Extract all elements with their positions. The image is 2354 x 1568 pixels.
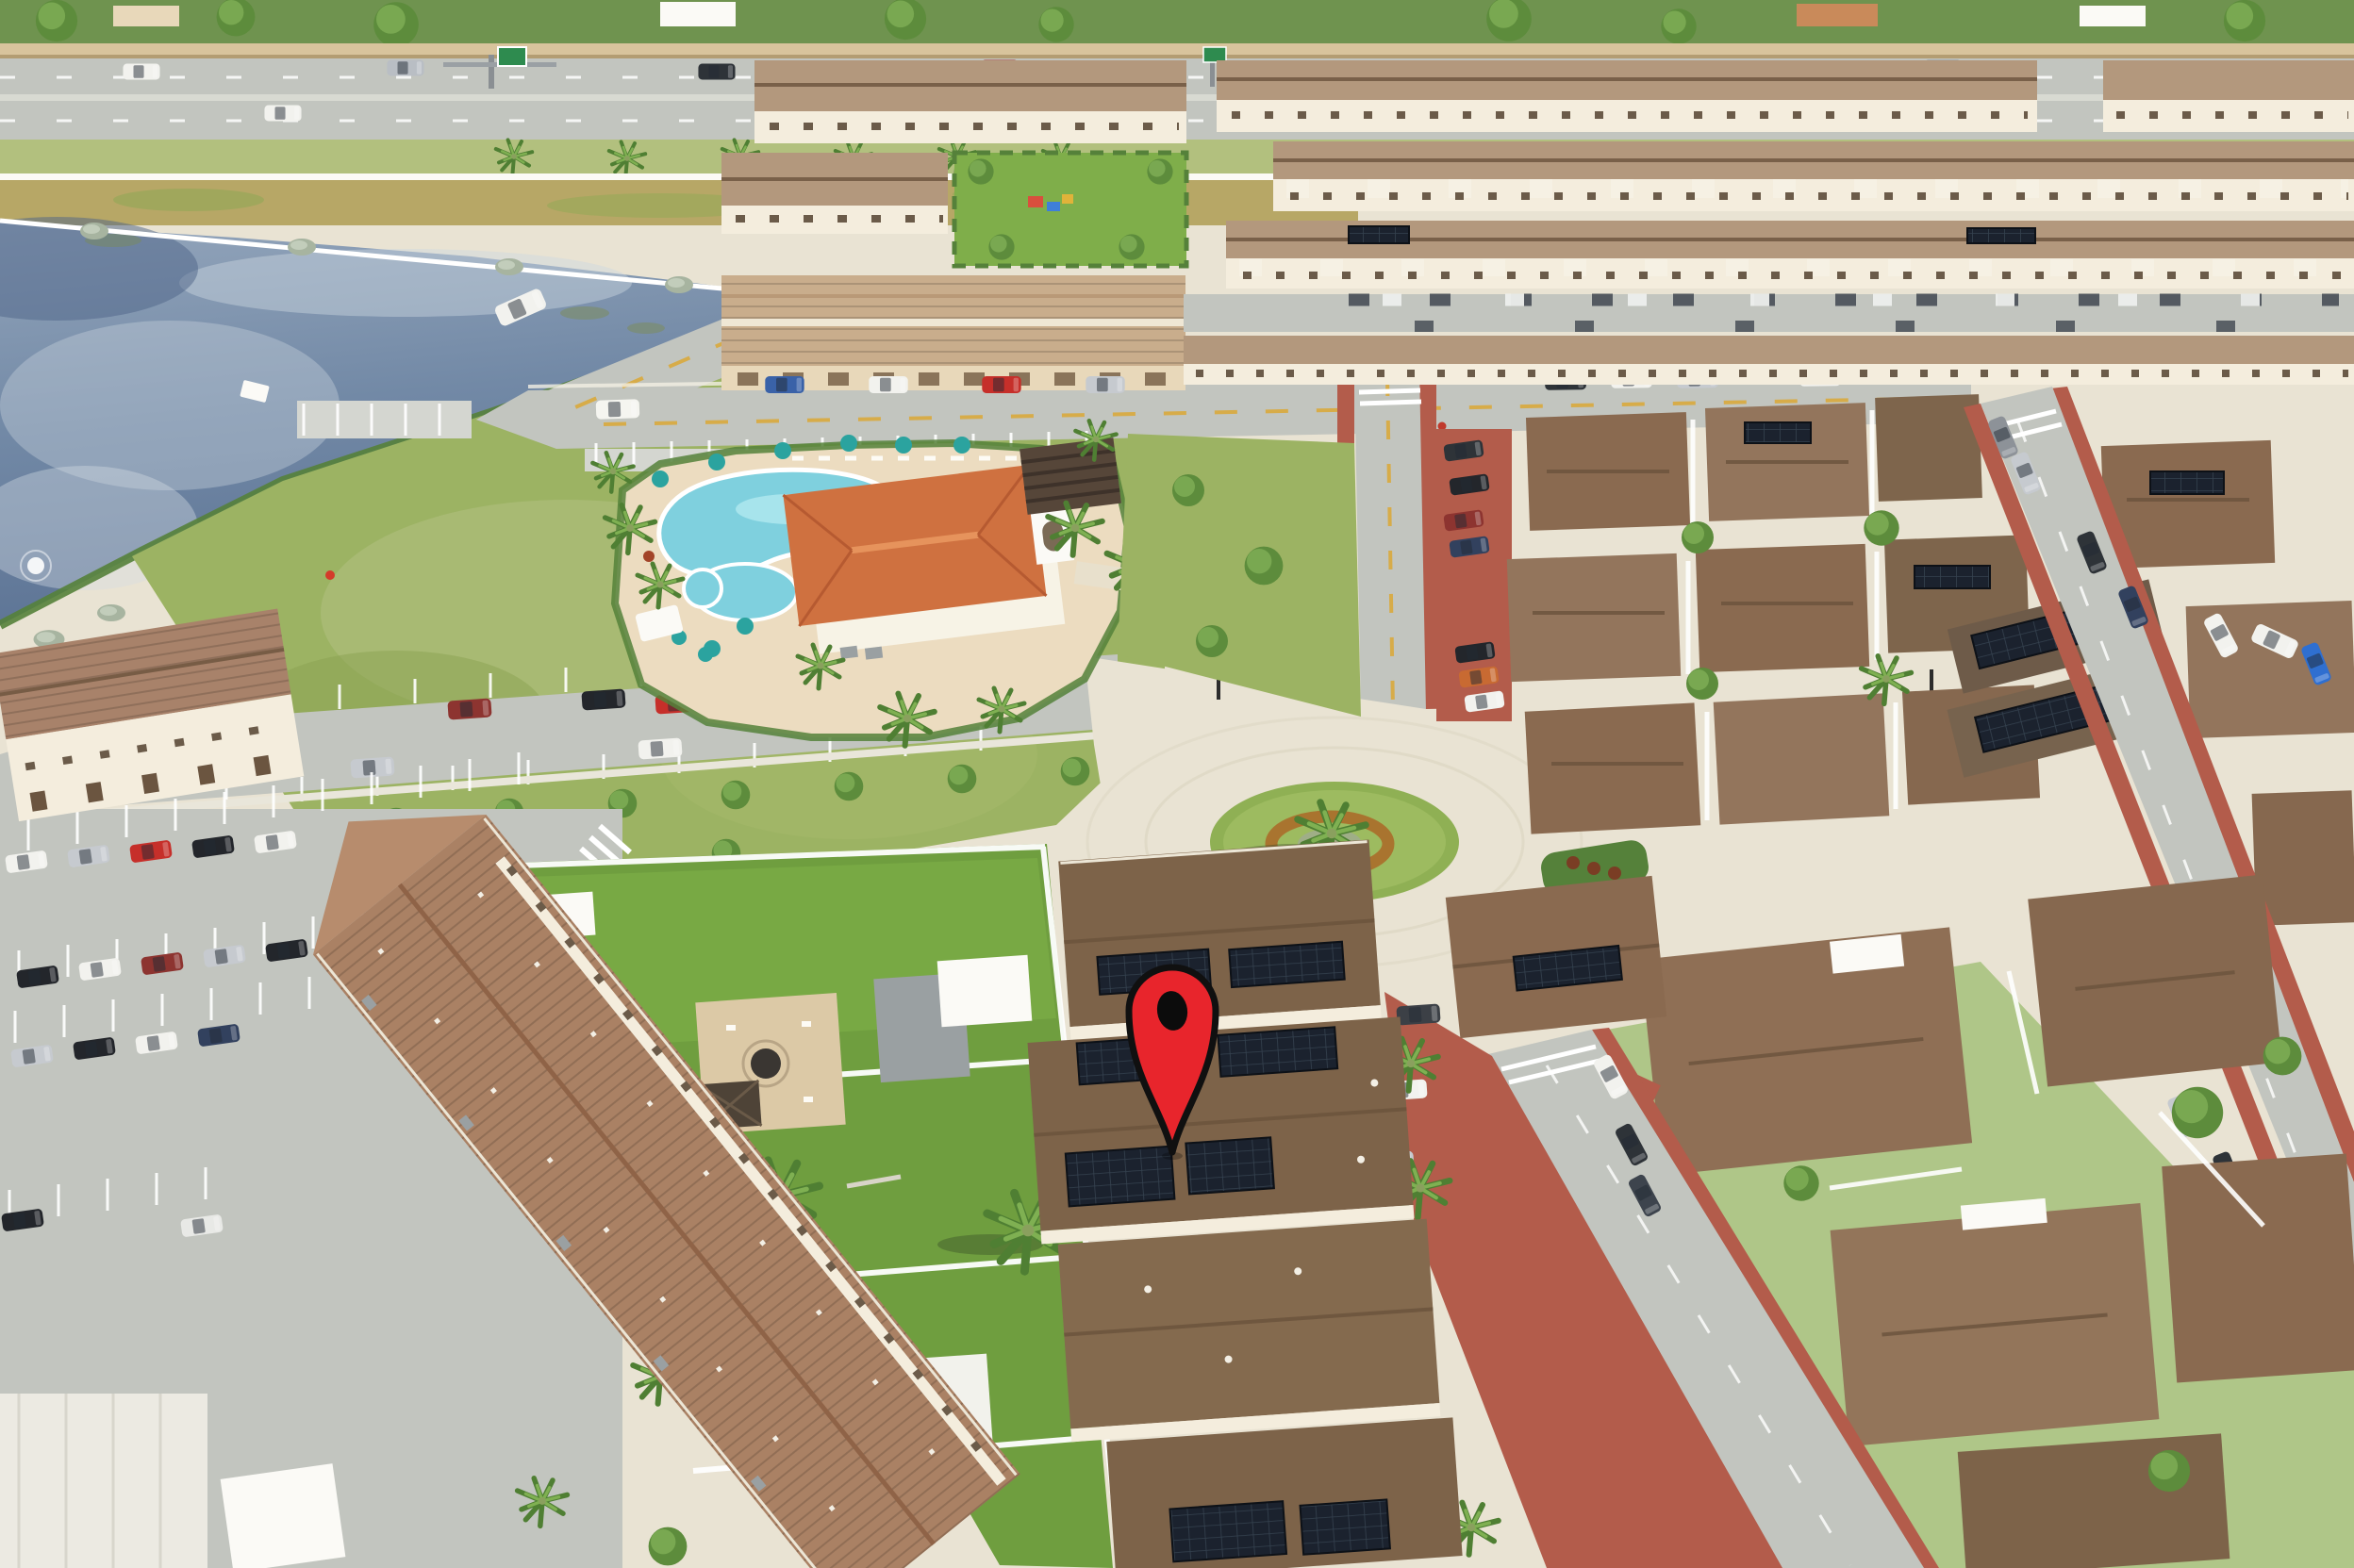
solar-panels [1169, 1501, 1286, 1561]
solar-panels [1229, 942, 1344, 987]
tree [948, 765, 977, 794]
tree [2148, 1450, 2190, 1492]
car [1086, 376, 1124, 393]
tree [1172, 474, 1204, 506]
solar-panels [1349, 226, 1409, 243]
tree [988, 234, 1014, 259]
tree [1147, 158, 1172, 184]
house-block [2162, 1153, 2354, 1382]
tree [1245, 547, 1284, 586]
car [387, 60, 423, 76]
house-block [1958, 1433, 2230, 1568]
tree [721, 781, 751, 810]
tree [2263, 1037, 2302, 1076]
solar-panels [1967, 228, 2035, 243]
aerial-photo [0, 0, 2354, 1568]
car [264, 106, 301, 122]
flat-roof-building [0, 1394, 207, 1568]
tree [373, 2, 419, 47]
tree [649, 1527, 688, 1566]
white-van [596, 399, 640, 420]
solar-panels [1915, 566, 1990, 588]
car [123, 64, 159, 80]
car [638, 737, 682, 759]
car [982, 376, 1020, 393]
tree [2172, 1087, 2223, 1138]
solar-panels [1066, 1147, 1175, 1207]
shrub [80, 223, 108, 239]
house-with-solar [1446, 876, 1666, 1038]
lake-fountain [27, 557, 44, 574]
solar-panels [1218, 1027, 1337, 1077]
shrub [495, 258, 523, 275]
highway-sign [1203, 47, 1226, 62]
flat-roof-building [221, 1463, 346, 1568]
shrub [97, 604, 125, 621]
solar-panels [2150, 471, 2224, 494]
car [581, 688, 625, 710]
townhouse-rows-northeast [1184, 60, 2354, 385]
pergola [1020, 437, 1121, 515]
solar-panels [1185, 1137, 1274, 1194]
tree [1661, 8, 1696, 43]
shrub [288, 239, 316, 256]
fire-pit [751, 1048, 781, 1079]
spa [684, 569, 721, 607]
house-block [1640, 927, 1972, 1175]
suv [1396, 1003, 1440, 1025]
house-with-solar [1058, 839, 1381, 1040]
car [869, 376, 907, 393]
tree [1119, 234, 1144, 259]
house-block [1058, 1219, 1441, 1443]
highway-sign [498, 47, 526, 66]
aerial-photo-canvas [0, 0, 2354, 1568]
tree [2224, 0, 2265, 41]
house-with-solar [1028, 1016, 1415, 1244]
sign-gantry [489, 55, 494, 89]
tree [36, 0, 77, 41]
tree [1686, 668, 1718, 700]
car [698, 64, 735, 80]
highway-sound-wall [0, 43, 2354, 57]
house-block [1829, 1190, 2159, 1446]
tree [1864, 510, 1898, 545]
tree [1061, 757, 1090, 786]
person-in-red [325, 570, 335, 580]
tree [835, 772, 864, 801]
house-block [2028, 874, 2282, 1086]
solar-panels [1301, 1499, 1390, 1554]
playground-equipment [1028, 196, 1043, 207]
shrub [665, 276, 693, 293]
tree [1682, 521, 1714, 553]
tree [1196, 625, 1228, 657]
tree [1783, 1165, 1818, 1200]
tree [1038, 7, 1073, 41]
townhouse-rows-center [721, 60, 1186, 393]
solar-panels [1745, 422, 1811, 443]
tree [968, 158, 993, 184]
car [765, 376, 804, 393]
house-with-solar [1106, 1417, 1462, 1568]
small-parking-pad [297, 401, 472, 438]
patio-roof [937, 955, 1033, 1028]
car [447, 698, 491, 719]
